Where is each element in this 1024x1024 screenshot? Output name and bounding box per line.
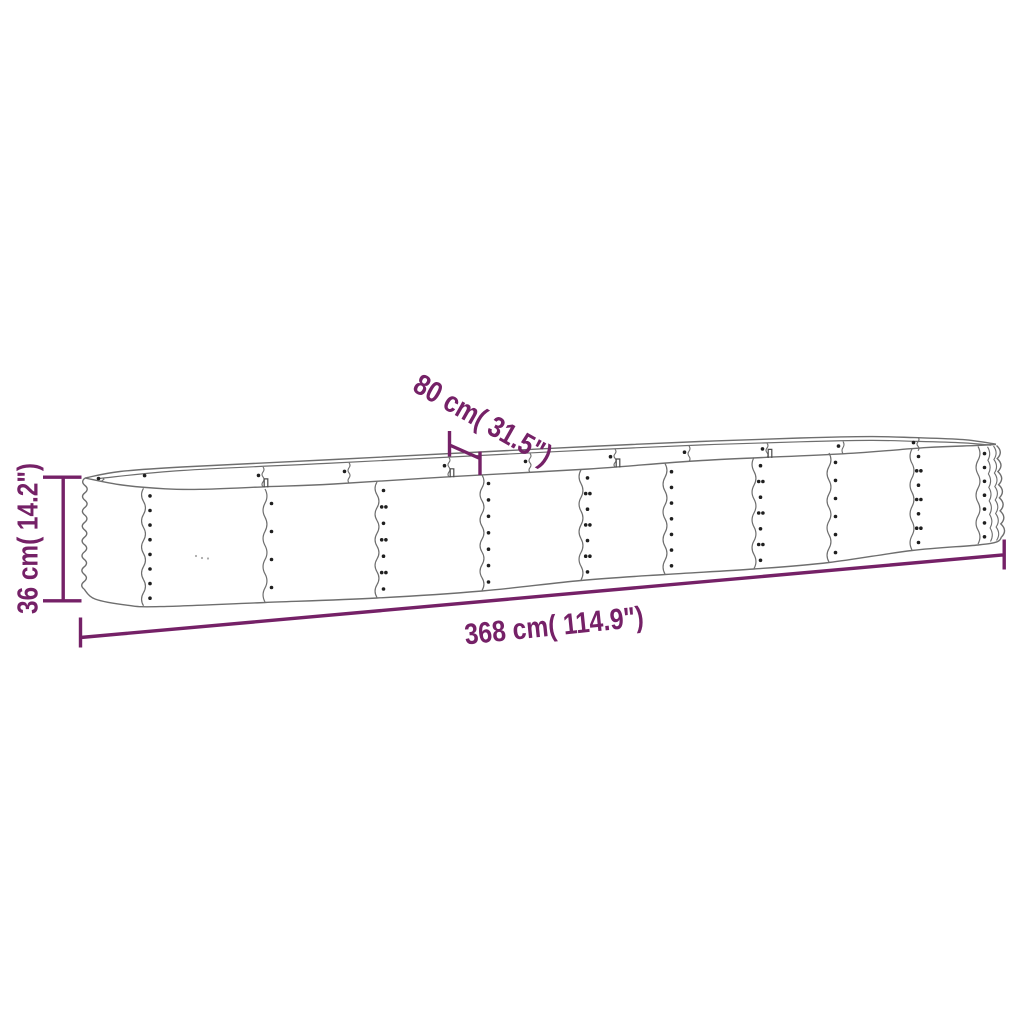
svg-text:36 cm( 14.2"): 36 cm( 14.2") — [12, 463, 44, 614]
